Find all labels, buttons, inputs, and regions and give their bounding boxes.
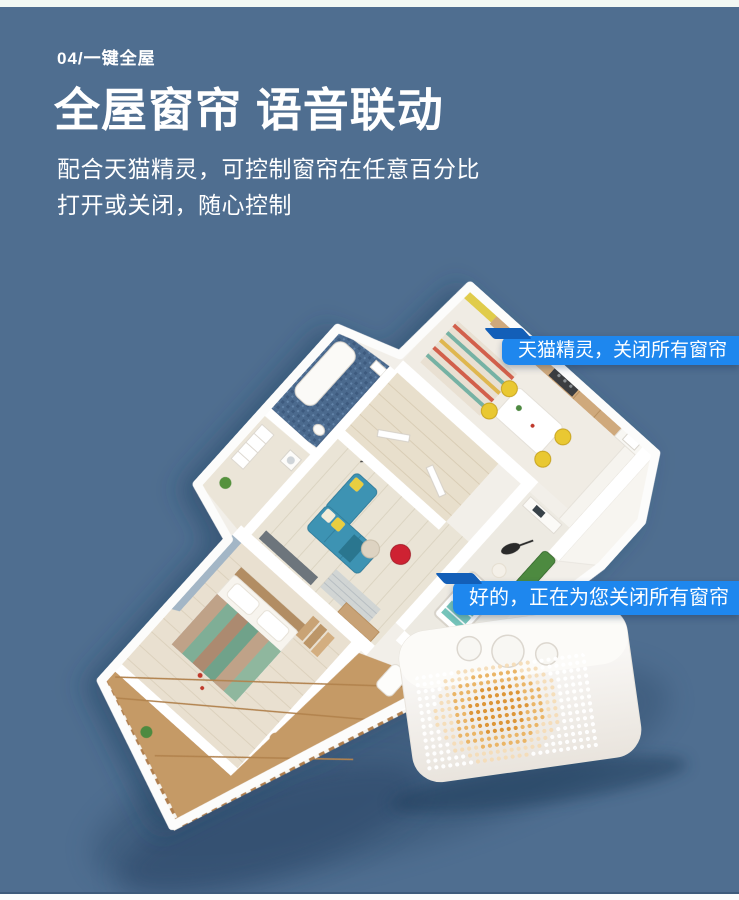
section-index: 04/一键全屋 [57, 44, 156, 69]
bottom-strip [0, 892, 739, 900]
page-title: 全屋窗帘 语音联动 [54, 74, 444, 140]
subtitle-line-2: 打开或关闭，随心控制 [57, 192, 292, 218]
promo-page: 04/一键全屋 全屋窗帘 语音联动 配合天猫精灵，可控制窗帘在任意百分比 打开或… [0, 0, 739, 900]
voice-command-bubble: 天猫精灵，关闭所有窗帘 [502, 336, 739, 365]
assistant-reply-bubble: 好的，正在为您关闭所有窗帘 [453, 581, 739, 615]
subtitle: 配合天猫精灵，可控制窗帘在任意百分比 打开或关闭，随心控制 [57, 151, 480, 223]
top-strip [0, 0, 739, 7]
subtitle-line-1: 配合天猫精灵，可控制窗帘在任意百分比 [57, 156, 480, 182]
